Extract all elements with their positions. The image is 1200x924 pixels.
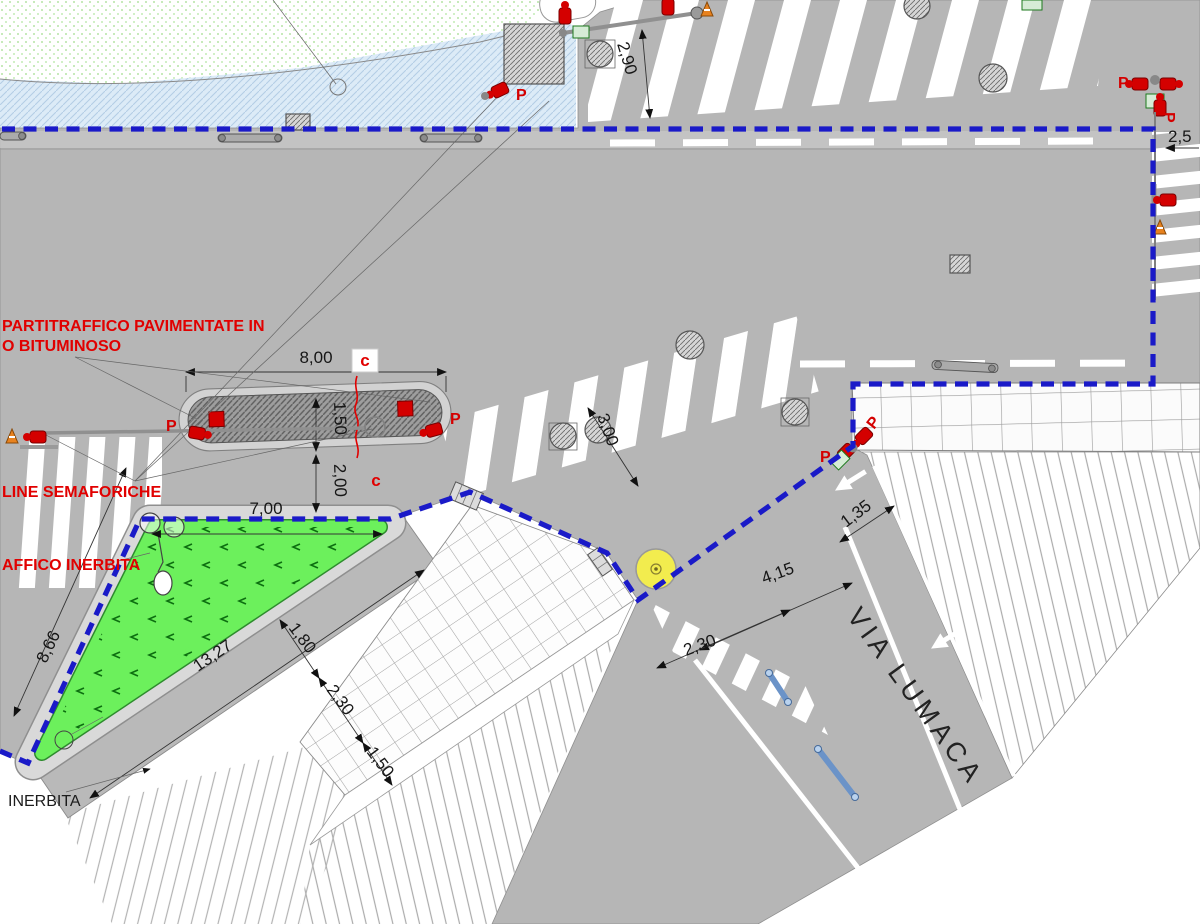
signal-p-label: P — [516, 87, 527, 104]
street-lamp-icon — [140, 513, 160, 533]
paver-sidewalk — [852, 383, 1200, 452]
signal-p-label: P — [1118, 75, 1129, 92]
signal-base — [209, 411, 225, 427]
control-box-icon — [573, 26, 589, 38]
control-box-icon — [1022, 0, 1042, 10]
signal-p-label: P — [450, 411, 461, 428]
lamp-bulb-icon — [154, 571, 172, 595]
mast-joint — [691, 7, 703, 19]
label-traffic-light-lines: LINE SEMAFORICHE — [2, 484, 161, 501]
pole — [559, 29, 567, 37]
crosswalk-right — [1152, 132, 1200, 302]
site-plan: c c PARTITRAFFICO PAVIMENTATE IN O BITUM… — [0, 0, 1200, 924]
dimension-island-length: 8,00 — [299, 348, 332, 367]
traffic-signal-icon — [662, 0, 674, 15]
embankment-areas — [0, 0, 576, 128]
dimension-island-width: 1,50 — [330, 401, 350, 435]
signal-p-label: P — [820, 449, 831, 466]
dimension-triangle-top: 7,00 — [249, 499, 282, 518]
yellow-marker — [636, 549, 676, 589]
signal-base — [398, 401, 414, 417]
pole — [481, 92, 489, 100]
label-grassed-divider: AFFICO INERBITA — [2, 557, 141, 574]
dimension-crosswalk-right: 2,5 — [1168, 127, 1192, 146]
pole — [1150, 75, 1160, 85]
section-letter-top: c — [360, 351, 369, 370]
label-paved-divider-2: O BITUMINOSO — [2, 338, 121, 355]
section-letter-bottom: c — [371, 471, 380, 490]
label-grassed: INERBITA — [8, 793, 81, 810]
signal-p-label: P — [1160, 112, 1177, 123]
dimension-island-gap: 2,00 — [330, 463, 350, 497]
signal-p-label: P — [166, 418, 177, 435]
label-paved-divider-1: PARTITRAFFICO PAVIMENTATE IN — [2, 318, 265, 335]
